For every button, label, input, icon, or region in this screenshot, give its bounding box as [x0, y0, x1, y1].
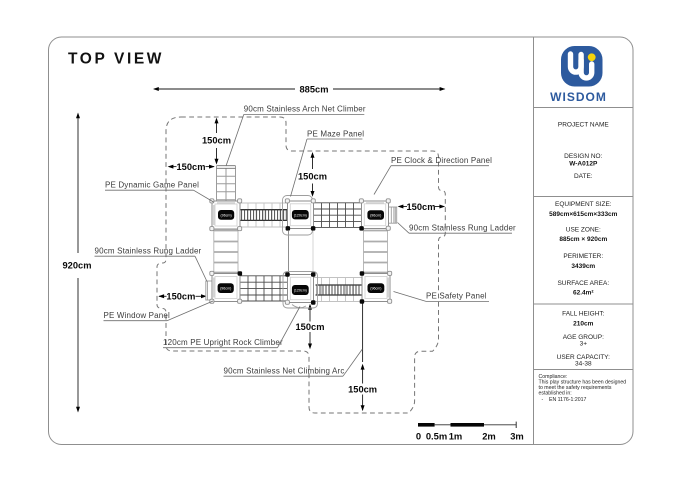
- svg-text:PROJECT NAME: PROJECT NAME: [558, 122, 609, 129]
- svg-text:0: 0: [416, 431, 421, 442]
- svg-text:885cm × 920cm: 885cm × 920cm: [559, 236, 607, 243]
- svg-text:(96cm): (96cm): [220, 287, 231, 291]
- svg-text:PE Safety Panel: PE Safety Panel: [426, 292, 487, 301]
- svg-text:589cm×615cm×333cm: 589cm×615cm×333cm: [549, 211, 618, 218]
- svg-text:established in:: established in:: [539, 390, 572, 396]
- svg-text:- EN 1176-1:2017: - EN 1176-1:2017: [542, 397, 587, 403]
- svg-text:34-38: 34-38: [575, 360, 592, 367]
- svg-text:150cm: 150cm: [202, 136, 231, 146]
- svg-text:1m: 1m: [449, 431, 463, 442]
- svg-text:920cm: 920cm: [63, 260, 92, 270]
- svg-text:210cm: 210cm: [573, 320, 593, 327]
- svg-text:0.5m: 0.5m: [426, 431, 447, 442]
- svg-text:885cm: 885cm: [300, 85, 329, 95]
- svg-text:150cm: 150cm: [296, 322, 325, 332]
- svg-text:150cm: 150cm: [177, 162, 206, 172]
- svg-text:150cm: 150cm: [166, 292, 195, 302]
- svg-text:SURFACE AREA:: SURFACE AREA:: [557, 280, 609, 287]
- svg-text:150cm: 150cm: [407, 202, 436, 212]
- svg-text:PERIMETER:: PERIMETER:: [563, 253, 603, 260]
- svg-text:90cm Stainless Rung Ladder: 90cm Stainless Rung Ladder: [409, 224, 516, 233]
- svg-text:PE Maze Panel: PE Maze Panel: [307, 129, 364, 138]
- svg-text:PE Dynamic Game Panel: PE Dynamic Game Panel: [105, 181, 199, 190]
- svg-text:3+: 3+: [580, 340, 588, 347]
- svg-text:(96cm): (96cm): [370, 287, 381, 291]
- svg-text:(96cm): (96cm): [221, 214, 232, 218]
- svg-text:(96cm): (96cm): [370, 214, 381, 218]
- svg-text:3m: 3m: [510, 431, 524, 442]
- svg-text:90cm Stainless Arch Net Climbe: 90cm Stainless Arch Net Climber: [244, 105, 366, 114]
- svg-text:FALL HEIGHT:: FALL HEIGHT:: [562, 310, 605, 317]
- svg-text:2m: 2m: [482, 431, 496, 442]
- svg-text:DESIGN NO:: DESIGN NO:: [564, 153, 602, 160]
- svg-text:120cm PE Upright Rock Climber: 120cm PE Upright Rock Climber: [163, 338, 283, 347]
- svg-text:150cm: 150cm: [298, 171, 327, 181]
- svg-text:(120cm): (120cm): [294, 289, 307, 293]
- svg-text:PE Clock & Direction Panel: PE Clock & Direction Panel: [391, 156, 492, 165]
- svg-text:USE ZONE:: USE ZONE:: [566, 226, 601, 233]
- svg-text:W-A012P: W-A012P: [569, 161, 598, 168]
- svg-text:150cm: 150cm: [348, 384, 377, 394]
- svg-text:90cm Stainless Net Climbing Ar: 90cm Stainless Net Climbing Arc: [224, 366, 345, 375]
- svg-text:PE Window Panel: PE Window Panel: [104, 311, 170, 320]
- svg-text:DATE:: DATE:: [574, 173, 593, 180]
- svg-text:WISDOM: WISDOM: [550, 90, 607, 104]
- svg-text:(120cm): (120cm): [294, 213, 307, 217]
- svg-text:3439cm: 3439cm: [571, 263, 595, 270]
- svg-text:90cm Stainless Rung Ladder: 90cm Stainless Rung Ladder: [95, 247, 202, 256]
- svg-text:TOP VIEW: TOP VIEW: [68, 51, 164, 68]
- svg-text:EQUIPMENT SIZE:: EQUIPMENT SIZE:: [555, 201, 612, 208]
- svg-text:62.4m²: 62.4m²: [573, 289, 594, 296]
